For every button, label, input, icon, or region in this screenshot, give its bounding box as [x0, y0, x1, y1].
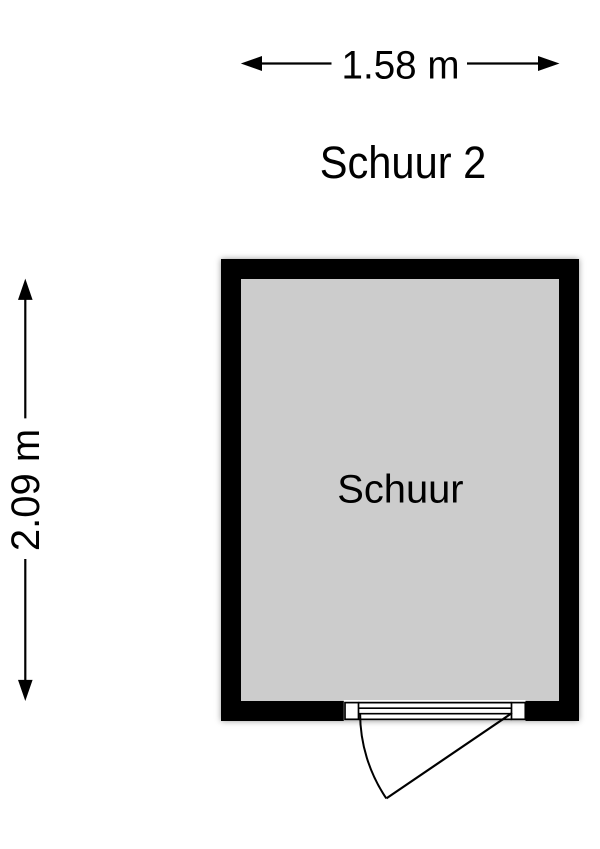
- svg-text:Schuur 2: Schuur 2: [320, 138, 487, 188]
- svg-text:1.58 m: 1.58 m: [342, 43, 460, 88]
- svg-text:2.09 m: 2.09 m: [4, 429, 48, 551]
- svg-text:Schuur: Schuur: [337, 468, 463, 512]
